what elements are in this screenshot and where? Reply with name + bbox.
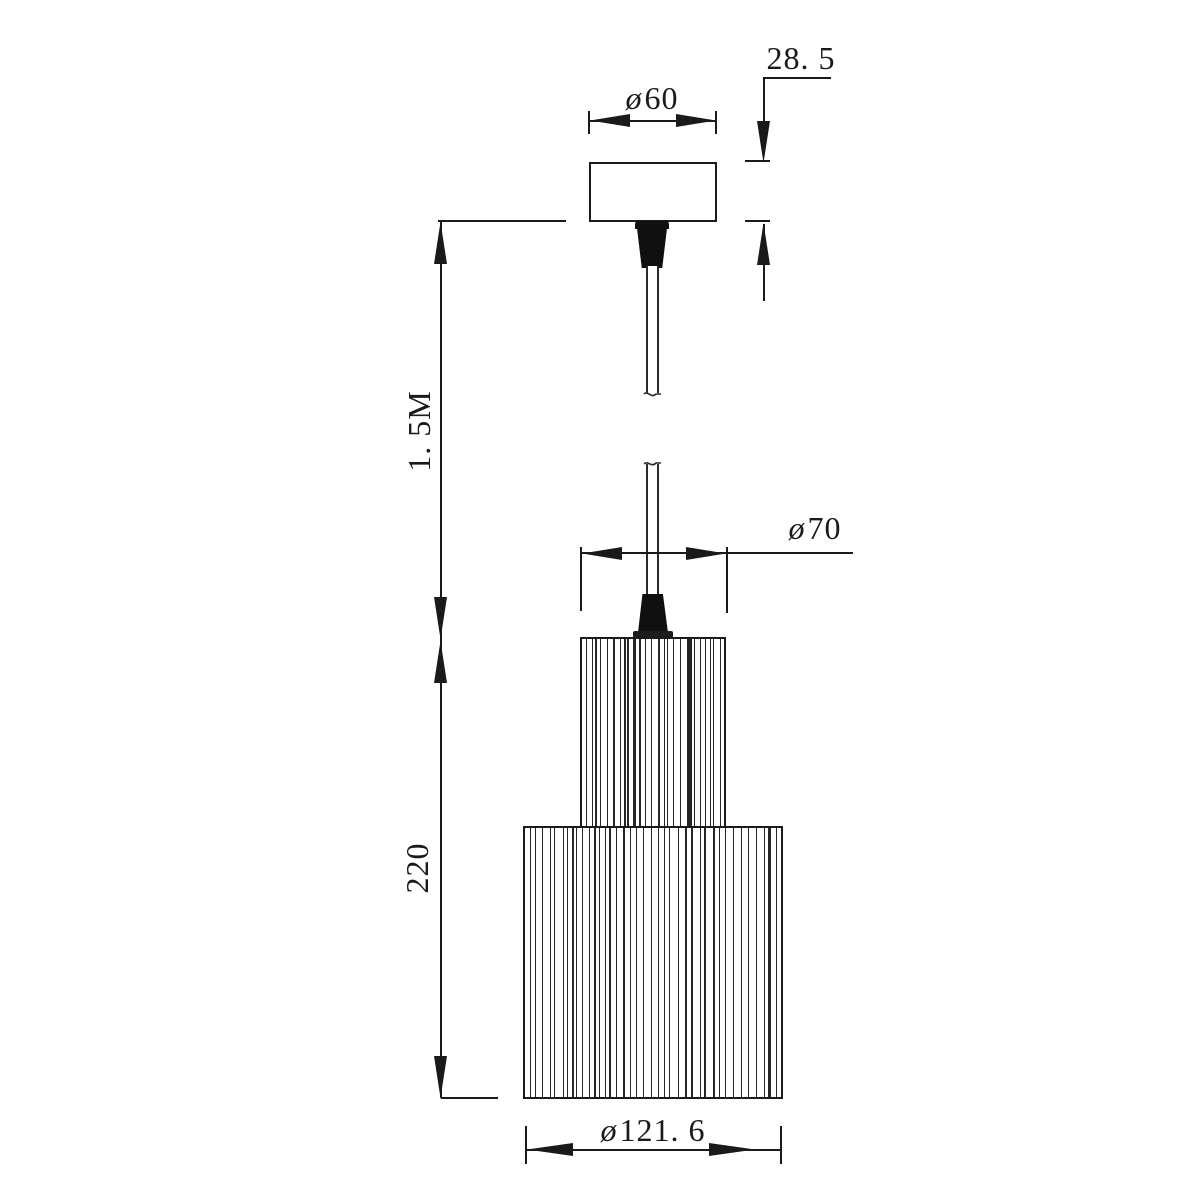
- dim-canopy-height-arrow-down: [757, 121, 770, 163]
- rib-line: [563, 828, 564, 1097]
- dim-cord-length-ext-top: [438, 220, 566, 222]
- rib-line: [554, 828, 555, 1097]
- rib-line: [599, 828, 600, 1097]
- rib-line: [535, 828, 536, 1097]
- cord-grip-top: [636, 228, 668, 268]
- cord-grip-top-nut: [635, 221, 669, 229]
- dim-shade-top-ext-right: [726, 547, 728, 613]
- rib-line: [651, 828, 652, 1097]
- dim-shade-height-arrow-up: [434, 641, 447, 683]
- rib-line: [530, 828, 531, 1097]
- rib-line: [639, 639, 640, 826]
- rib-line: [636, 828, 637, 1097]
- dim-shade-bottom-label: ø121. 6: [553, 1112, 753, 1148]
- dim-canopy-height-label: 28. 5: [741, 40, 861, 76]
- cord-grip-bottom: [637, 594, 669, 633]
- dim-shade-height-arrow-down: [434, 1056, 447, 1098]
- rib-line: [748, 828, 749, 1097]
- rib-line: [550, 828, 551, 1097]
- power-cord-upper: [646, 266, 659, 393]
- dim-cord-length-label: 1. 5M: [399, 361, 439, 501]
- rib-line: [691, 828, 692, 1097]
- rib-line: [582, 828, 583, 1097]
- rib-line: [567, 828, 568, 1097]
- rib-line: [741, 828, 742, 1097]
- dim-cord-length-arrow-down: [434, 597, 447, 639]
- rib-line: [609, 828, 612, 1097]
- rib-line: [633, 639, 636, 826]
- dim-shade-height-ext-bottom: [441, 1097, 498, 1099]
- dim-canopy-diameter-ext-right: [715, 111, 717, 134]
- rib-line: [704, 828, 705, 1097]
- rib-line: [673, 639, 674, 826]
- rib-line: [725, 828, 726, 1097]
- dim-canopy-diameter-label: ø60: [592, 80, 712, 116]
- rib-line: [667, 639, 668, 826]
- diameter-symbol: ø: [789, 510, 806, 546]
- rib-line: [627, 639, 630, 826]
- dim-canopy-height-tick-top: [745, 160, 770, 162]
- technical-drawing-canvas: ø60 28. 5 1. 5M 220 ø70 ø121. 6: [0, 0, 1200, 1200]
- rib-line: [768, 828, 771, 1097]
- rib-line: [713, 639, 714, 826]
- dim-shade-bottom-ext-right: [780, 1126, 782, 1164]
- rib-line: [658, 639, 659, 826]
- dim-canopy-height-leader: [763, 77, 831, 79]
- rib-line: [678, 828, 679, 1097]
- dim-canopy-diameter-ext-left: [588, 111, 590, 134]
- cord-break-mark-lower: [643, 459, 662, 469]
- rib-line: [595, 639, 596, 826]
- dim-shade-bottom-ext-left: [525, 1126, 527, 1164]
- rib-line: [776, 828, 777, 1097]
- rib-line: [685, 828, 686, 1097]
- rib-line: [542, 828, 543, 1097]
- rib-line: [645, 639, 646, 826]
- dim-shade-top-label: ø70: [755, 510, 875, 546]
- rib-line: [594, 828, 597, 1097]
- rib-line: [658, 828, 659, 1097]
- rib-line: [664, 828, 665, 1097]
- rib-line: [700, 639, 701, 826]
- dim-canopy-height-tick-bottom: [745, 220, 770, 222]
- rib-line: [592, 639, 593, 826]
- rib-line: [756, 828, 757, 1097]
- rib-line: [643, 828, 644, 1097]
- dim-cord-length-line: [440, 221, 442, 640]
- rib-line: [669, 828, 670, 1097]
- shade-lower-section: [523, 826, 783, 1099]
- rib-line: [705, 639, 706, 826]
- shade-upper-section: [580, 637, 726, 828]
- rib-line: [700, 828, 701, 1097]
- rib-line: [589, 828, 590, 1097]
- rib-line: [620, 639, 621, 826]
- rib-line: [630, 828, 631, 1097]
- dim-shade-height-label: 220: [397, 798, 437, 938]
- dim-cord-length-arrow-up: [434, 222, 447, 264]
- rib-line: [687, 639, 690, 826]
- rib-line: [720, 639, 721, 826]
- rib-line: [719, 828, 720, 1097]
- rib-line: [586, 639, 587, 826]
- dim-shade-top-arrow-left: [582, 547, 622, 560]
- rib-line: [694, 639, 695, 826]
- diameter-symbol: ø: [601, 1112, 618, 1148]
- rib-line: [733, 828, 734, 1097]
- rib-line: [664, 639, 665, 826]
- rib-line: [713, 828, 716, 1097]
- dim-canopy-height-line-top: [763, 77, 765, 124]
- diameter-symbol: ø: [626, 80, 643, 116]
- dim-shade-top-ext-left: [580, 547, 582, 611]
- cord-break-mark-upper: [643, 390, 662, 400]
- rib-line: [572, 828, 575, 1097]
- rib-line: [600, 639, 601, 826]
- rib-line: [613, 639, 616, 826]
- dim-shade-top-arrow-right: [686, 547, 726, 560]
- rib-line: [576, 828, 577, 1097]
- rib-line: [764, 828, 765, 1097]
- rib-line: [605, 828, 606, 1097]
- dim-canopy-height-line-bottom: [763, 224, 765, 301]
- rib-line: [607, 639, 608, 826]
- rib-line: [616, 828, 617, 1097]
- ceiling-canopy: [589, 162, 717, 222]
- power-cord-lower: [646, 464, 659, 594]
- dim-shade-height-line: [440, 640, 442, 1098]
- rib-line: [710, 639, 711, 826]
- rib-line: [651, 639, 652, 826]
- rib-line: [623, 828, 624, 1097]
- rib-line: [680, 639, 681, 826]
- rib-line: [690, 639, 691, 826]
